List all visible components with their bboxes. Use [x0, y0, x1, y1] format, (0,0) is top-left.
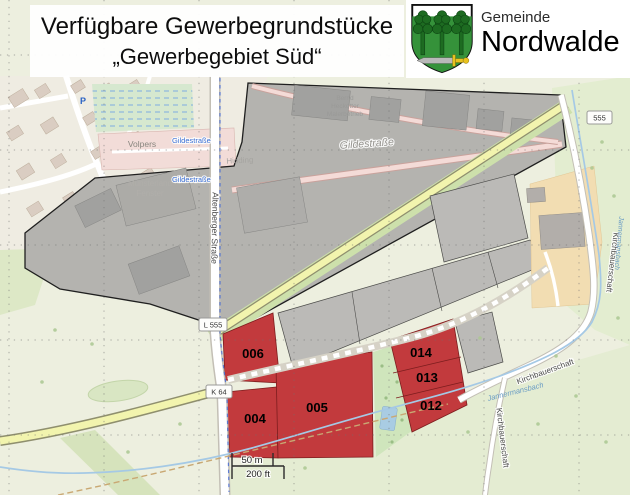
wetland-area [92, 84, 194, 132]
plot-label-005: 005 [306, 400, 328, 415]
business-label-1: Bernd [336, 95, 354, 102]
sign-555-label: 555 [593, 114, 606, 123]
business-label-2: Heckotter [331, 103, 360, 110]
title-box: Verfügbare Gewerbegrundstücke „Gewerbege… [30, 5, 404, 77]
place-label-hidding: Hidding [226, 155, 254, 165]
scale-metric-label: 50 m [241, 455, 262, 466]
parking-icon: P [80, 96, 86, 106]
street-label-altenberger: Altenberger Straße [209, 192, 220, 264]
business-label-3: Malerbetrieb [327, 111, 364, 118]
place-label-muensterland-2: Fenster [136, 189, 163, 198]
page-title-line2: „Gewerbegebiet Süd“ [112, 44, 321, 70]
busstop-label-gildestrasse-1: Gildestraße [172, 136, 211, 145]
plot-label-013: 013 [416, 370, 438, 385]
place-label-volpers: Volpers [128, 139, 156, 149]
crest-trees [413, 11, 471, 55]
map-document: 006 004 005 014 013 012 Altenberger Stra… [0, 0, 630, 495]
plot-label-006: 006 [242, 346, 264, 361]
nordwalde-coat-of-arms-icon [409, 3, 475, 74]
plot-label-004: 004 [244, 411, 266, 426]
municipality-header: Gemeinde Nordwalde [406, 0, 630, 78]
municipality-text: Gemeinde Nordwalde [481, 0, 620, 57]
municipality-label: Gemeinde [481, 10, 620, 27]
plot-label-014: 014 [410, 345, 432, 360]
sign-l555-label: L 555 [204, 321, 223, 330]
place-label-muensterland-1: Münsterland [128, 179, 172, 188]
plot-label-012: 012 [420, 398, 442, 413]
busstop-label-gildestrasse-2: Gildestraße [172, 175, 211, 184]
scale-imperial-label: 200 ft [246, 469, 270, 480]
sign-k64-label: K 64 [211, 388, 226, 397]
municipality-name: Nordwalde [481, 27, 620, 57]
page-title-line1: Verfügbare Gewerbegrundstücke [41, 13, 393, 41]
